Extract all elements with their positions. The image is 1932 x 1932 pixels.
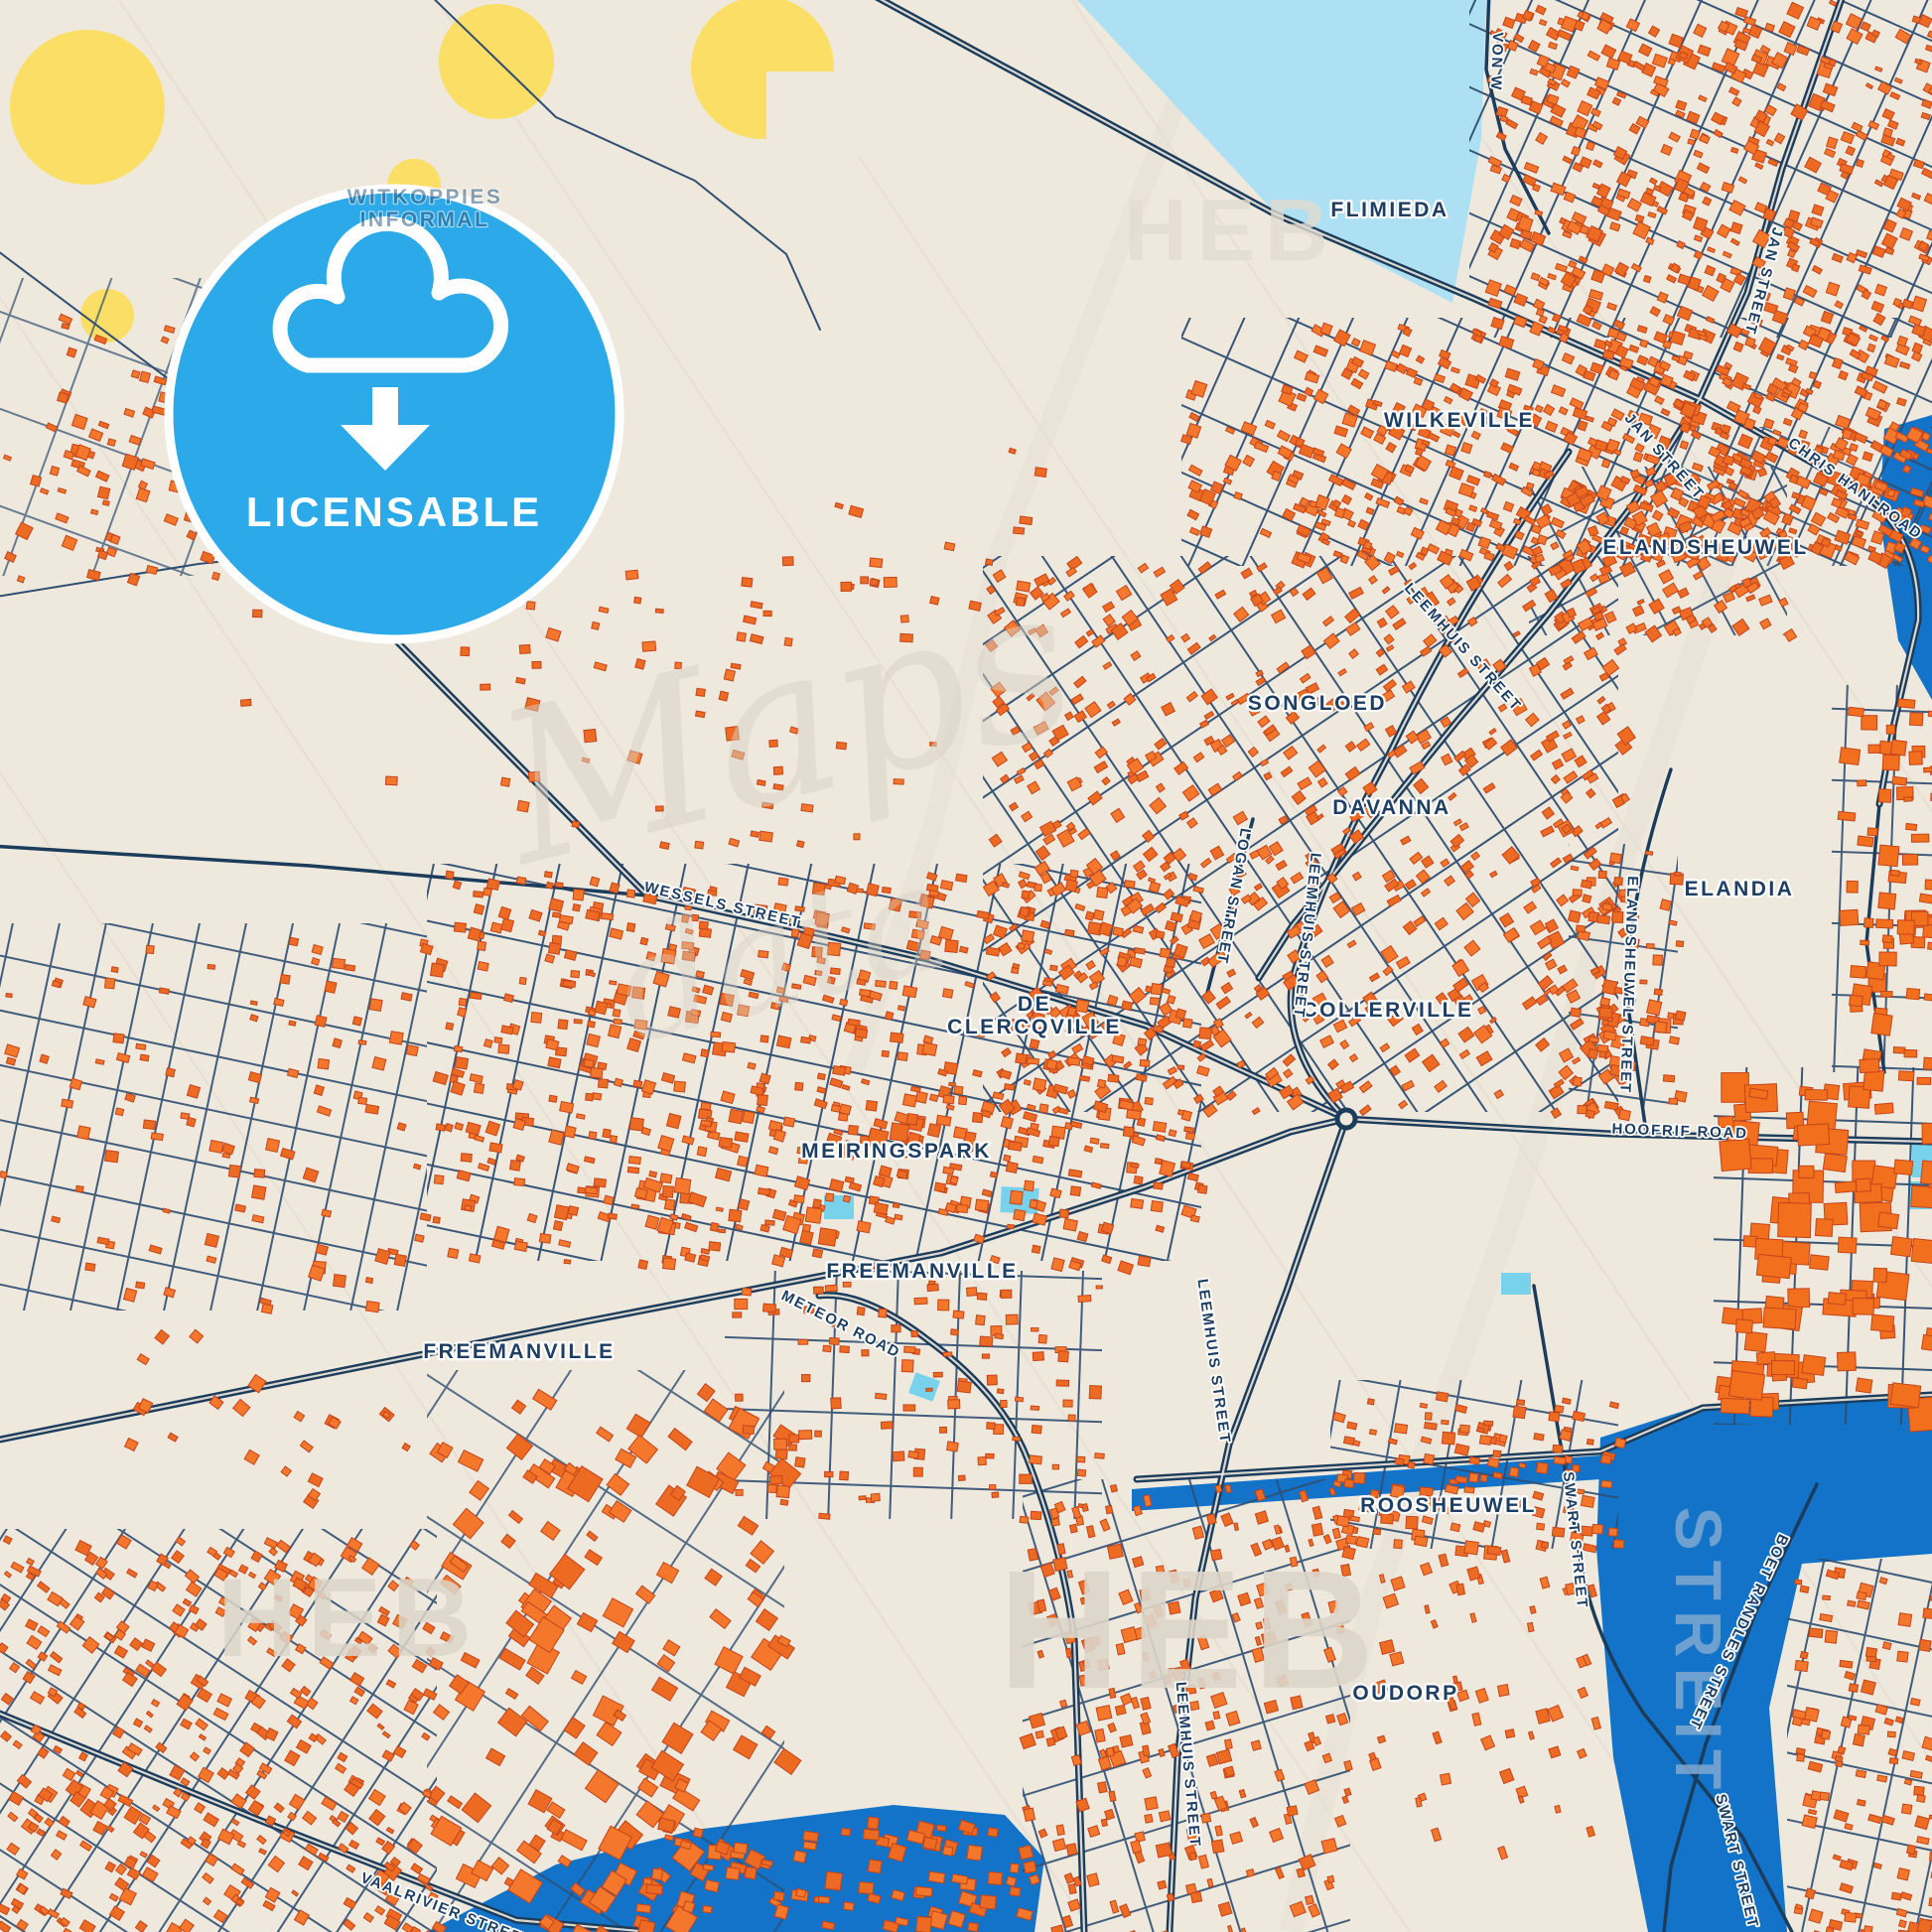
place-label: ROOSHEUWEL — [1360, 1494, 1537, 1517]
place-label: ELANDIA — [1685, 878, 1795, 900]
place-label: WITKOPPIESINFORMAL — [347, 186, 503, 231]
place-label: DAVANNA — [1332, 796, 1450, 819]
badge-label: LICENSABLE — [246, 488, 542, 535]
place-label: FREEMANVILLE — [826, 1260, 1018, 1283]
place-label: SONGLOED — [1248, 692, 1387, 715]
ghost-labels-layer: WITKOPPIESINFORMAL — [347, 186, 503, 231]
place-label: WILKEVILLE — [1384, 409, 1535, 432]
watermark-text: HEB — [999, 1536, 1385, 1725]
place-label: FREEMANVILLE — [423, 1340, 615, 1363]
watermark-text: HEB — [1124, 181, 1338, 279]
place-label: COLLERVILLE — [1303, 999, 1474, 1022]
watermark-text: HEB — [217, 1556, 482, 1680]
street-label: VON W — [1487, 32, 1506, 91]
roundabout — [1337, 1110, 1355, 1128]
map-poster: MapsdataHEBHEBHEBSTREIT FLIMIEDAWILKEVIL… — [0, 0, 1932, 1932]
licensable-badge[interactable]: LICENSABLE — [169, 189, 620, 639]
place-label: MEIRINGSPARK — [801, 1140, 992, 1163]
map-canvas: MapsdataHEBHEBHEBSTREIT FLIMIEDAWILKEVIL… — [0, 0, 1932, 1932]
place-label: OUDORP — [1352, 1682, 1458, 1705]
place-label: FLIMIEDA — [1330, 199, 1449, 221]
place-label: ELANDSHEUWEL — [1602, 536, 1808, 559]
